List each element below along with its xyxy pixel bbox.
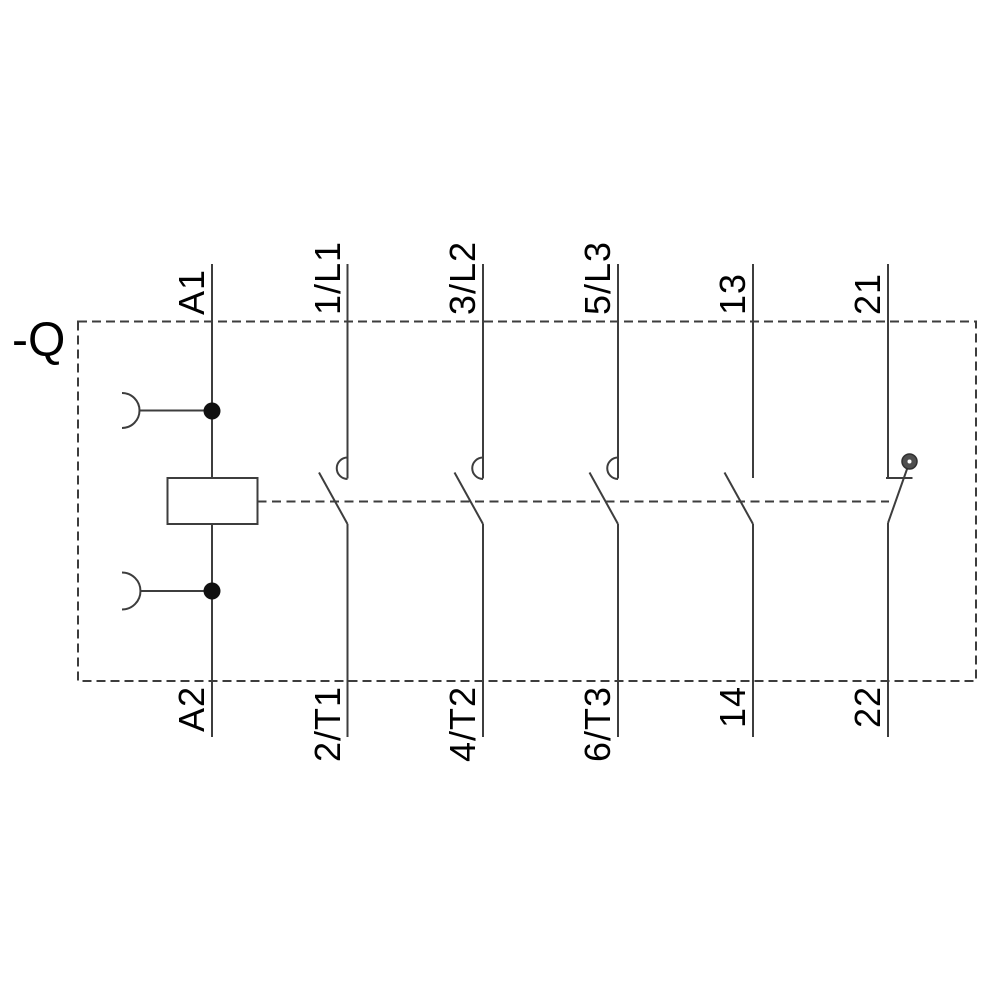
aux-contact-nc	[886, 264, 917, 737]
terminal-label-1l1: 1/L1	[310, 241, 346, 315]
schematic-canvas: -Q A1 1/L1 3/L2 5/L3 13 21 A2 2/T1 4/T2 …	[0, 0, 1000, 1000]
schematic-linework	[0, 0, 1000, 1000]
terminal-label-22: 22	[850, 686, 886, 728]
moving-contact-line	[319, 473, 348, 525]
contact-arc	[472, 458, 483, 480]
terminal-label-a2: A2	[174, 686, 210, 732]
moving-contact-line	[455, 473, 484, 525]
terminal-label-2t1: 2/T1	[310, 686, 346, 762]
coil-branch	[122, 264, 258, 737]
terminal-label-a1: A1	[174, 269, 210, 315]
moving-contact-line	[888, 462, 910, 523]
terminal-label-14: 14	[715, 686, 751, 728]
terminal-label-21: 21	[850, 273, 886, 315]
terminal-label-5l3: 5/L3	[580, 241, 616, 315]
device-tag-label: -Q	[12, 317, 65, 365]
coil-connector-arc-top	[122, 393, 212, 428]
contact-arc	[337, 458, 348, 480]
nc-pivot-dot-center	[908, 460, 912, 464]
moving-contact-line	[725, 473, 754, 525]
terminal-label-3l2: 3/L2	[445, 241, 481, 315]
coil-symbol	[168, 478, 258, 524]
contact-arc	[607, 458, 618, 480]
junction-dot-bottom	[204, 583, 221, 600]
terminal-label-13: 13	[715, 273, 751, 315]
moving-contact-line	[590, 473, 619, 525]
terminal-label-6t3: 6/T3	[580, 686, 616, 762]
junction-dot-top	[204, 403, 221, 420]
coil-connector-arc-bottom	[122, 573, 212, 610]
terminal-label-4t2: 4/T2	[445, 686, 481, 762]
